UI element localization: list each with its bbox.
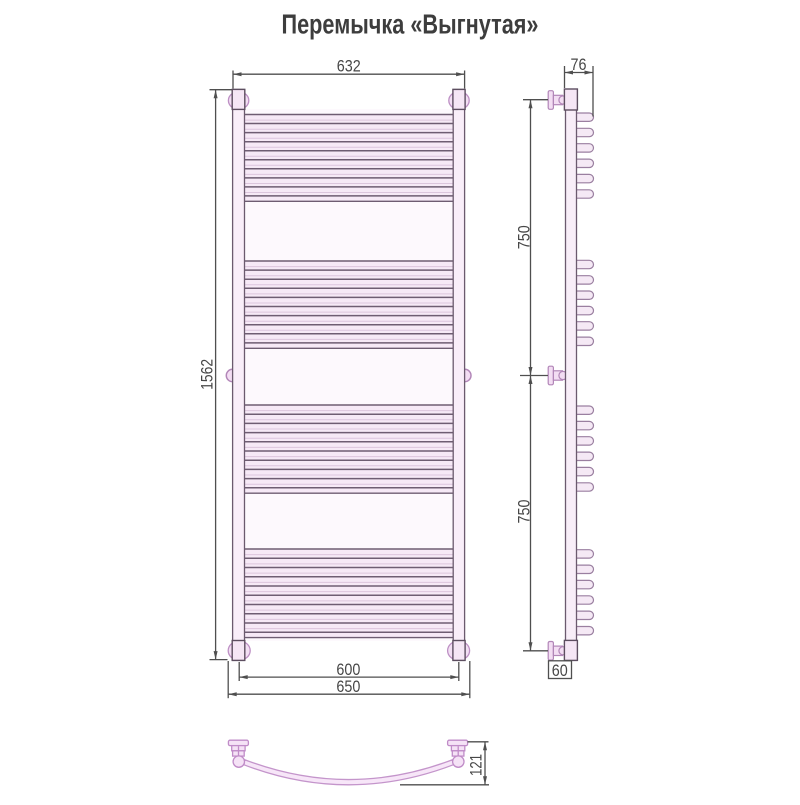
- svg-text:750: 750: [514, 225, 533, 249]
- svg-text:60: 60: [552, 661, 568, 680]
- svg-text:Перемычка «Выгнутая»: Перемычка «Выгнутая»: [282, 9, 539, 40]
- svg-text:76: 76: [571, 55, 587, 74]
- svg-text:121: 121: [467, 754, 486, 776]
- svg-text:1562: 1562: [198, 359, 217, 390]
- svg-text:650: 650: [336, 677, 360, 696]
- svg-text:750: 750: [514, 500, 533, 524]
- svg-text:632: 632: [337, 56, 361, 75]
